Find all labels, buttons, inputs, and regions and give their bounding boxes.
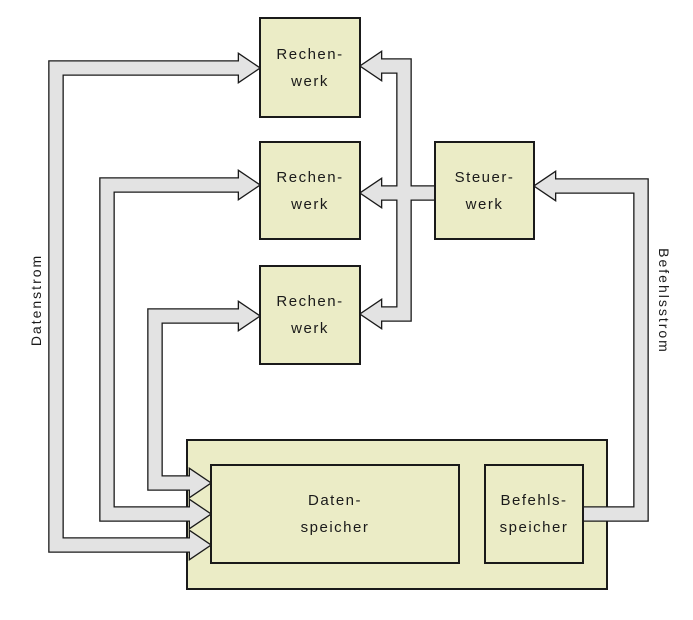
node-rechenwerk-3-label-line1: Rechen- <box>276 288 343 315</box>
node-rechenwerk-2: Rechen- werk <box>259 141 361 240</box>
node-befehlsspeicher-label-line1: Befehls- <box>500 487 567 514</box>
node-rechenwerk-1: Rechen- werk <box>259 17 361 118</box>
node-rechenwerk-3: Rechen- werk <box>259 265 361 365</box>
node-rechenwerk-1-label-line2: werk <box>291 68 329 95</box>
befehlsstrom-label: Befehlsstrom <box>656 248 672 354</box>
node-steuerwerk-label-line2: werk <box>466 191 504 218</box>
node-datenspeicher-label-line1: Daten- <box>308 487 362 514</box>
node-rechenwerk-1-label-line1: Rechen- <box>276 41 343 68</box>
node-rechenwerk-3-label-line2: werk <box>291 315 329 342</box>
node-steuerwerk-label-line1: Steuer- <box>455 164 515 191</box>
architecture-diagram: Rechen- werk Rechen- werk Rechen- werk S… <box>0 0 693 620</box>
node-datenspeicher: Daten- speicher <box>210 464 460 564</box>
node-rechenwerk-2-label-line1: Rechen- <box>276 164 343 191</box>
node-steuerwerk: Steuer- werk <box>434 141 535 240</box>
node-datenspeicher-label-line2: speicher <box>301 514 370 541</box>
node-befehlsspeicher: Befehls- speicher <box>484 464 584 564</box>
datenstrom-label: Datenstrom <box>28 254 44 346</box>
node-befehlsspeicher-label-line2: speicher <box>500 514 569 541</box>
node-rechenwerk-2-label-line2: werk <box>291 191 329 218</box>
